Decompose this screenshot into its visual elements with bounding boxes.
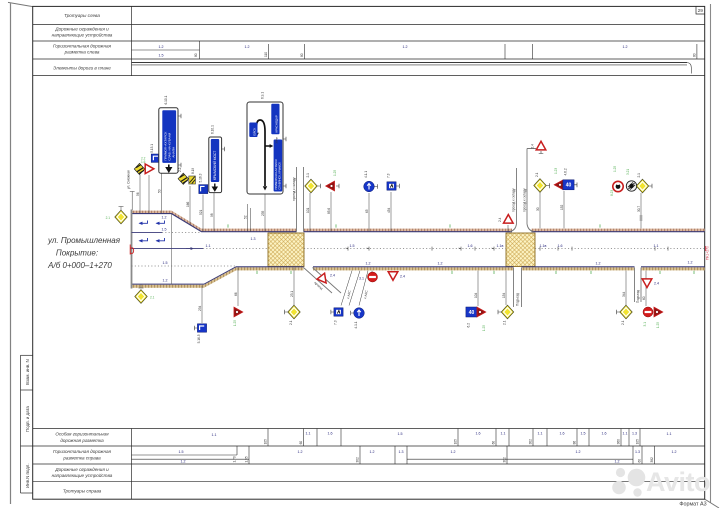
svg-text:1.1в: 1.1в (497, 244, 504, 248)
svg-text:7.3: 7.3 (334, 320, 338, 325)
svg-text:2.4: 2.4 (330, 274, 335, 278)
svg-text:50: 50 (157, 189, 161, 193)
svg-text:80: 80 (300, 53, 304, 57)
svg-text:проезд к складу: проезд к складу (522, 188, 526, 212)
svg-text:23.1: 23.1 (290, 291, 294, 297)
svg-text:382: 382 (650, 457, 654, 463)
svg-text:1.2: 1.2 (298, 450, 303, 454)
svg-text:6.9.1: 6.9.1 (261, 92, 265, 99)
svg-text:101: 101 (306, 207, 310, 213)
svg-text:дорожная разметка: дорожная разметка (60, 438, 104, 443)
svg-text:1.5: 1.5 (350, 244, 355, 248)
svg-text:2.1: 2.1 (535, 172, 539, 177)
svg-text:1.25: 1.25 (613, 166, 617, 172)
svg-text:1.2: 1.2 (159, 45, 164, 49)
svg-text:1.6: 1.6 (468, 244, 473, 248)
svg-text:65: 65 (365, 209, 369, 213)
svg-text:1.5: 1.5 (163, 261, 168, 265)
svg-text:2.1: 2.1 (289, 320, 293, 325)
svg-text:302: 302 (503, 457, 507, 463)
svg-text:1.3: 1.3 (632, 432, 637, 436)
svg-text:Покрытие:: Покрытие: (56, 249, 98, 258)
svg-text:1.2: 1.2 (615, 459, 620, 463)
svg-text:Формат А3: Формат А3 (679, 502, 706, 508)
svg-text:направляющие устройства: направляющие устройства (52, 32, 113, 38)
svg-text:7.3: 7.3 (387, 173, 391, 178)
svg-text:52: 52 (243, 215, 247, 219)
svg-text:1.25: 1.25 (656, 322, 660, 328)
svg-text:2.4: 2.4 (498, 217, 502, 222)
svg-text:1.55: 1.55 (245, 456, 249, 462)
svg-text:Подп. и дата: Подп. и дата (25, 406, 30, 432)
svg-text:1.25: 1.25 (333, 170, 337, 176)
svg-text:ул. Смежная: ул. Смежная (127, 170, 131, 189)
svg-text:разметка слева: разметка слева (64, 50, 100, 55)
svg-text:152: 152 (560, 204, 564, 210)
svg-text:8.19: 8.19 (191, 168, 195, 174)
svg-text:1.6: 1.6 (476, 432, 481, 436)
svg-text:4.1.1: 4.1.1 (364, 171, 368, 178)
svg-text:АНАПА: АНАПА (171, 146, 175, 158)
svg-text:166: 166 (186, 201, 190, 207)
svg-text:56: 56 (136, 192, 140, 196)
svg-text:1.1: 1.1 (654, 244, 659, 248)
svg-text:1.1в: 1.1в (540, 244, 547, 248)
svg-text:1.70: 1.70 (233, 456, 237, 462)
svg-text:30.7: 30.7 (637, 206, 641, 212)
svg-text:2.2: 2.2 (178, 167, 182, 172)
svg-text:66: 66 (234, 292, 238, 296)
svg-text:Подъезд: Подъезд (636, 290, 640, 303)
svg-text:154: 154 (502, 292, 506, 298)
svg-text:Горизонтальная дорожная: Горизонтальная дорожная (53, 449, 112, 454)
svg-text:1.1: 1.1 (538, 432, 543, 436)
svg-text:3.21: 3.21 (626, 169, 630, 175)
svg-text:2.1: 2.1 (306, 173, 310, 178)
svg-text:1.2: 1.2 (366, 261, 371, 265)
svg-text:302: 302 (529, 439, 533, 445)
svg-text:1.2: 1.2 (370, 450, 375, 454)
svg-text:60: 60 (492, 441, 496, 445)
svg-text:5.15.1: 5.15.1 (150, 144, 154, 153)
svg-text:1.2: 1.2 (451, 450, 456, 454)
svg-text:СЛАВЯНСК, КРЫМСК: СЛАВЯНСК, КРЫМСК (278, 162, 282, 190)
svg-text:1.5: 1.5 (179, 450, 184, 454)
svg-text:6.10.1: 6.10.1 (164, 95, 168, 104)
svg-text:6.10.1: 6.10.1 (211, 125, 215, 134)
svg-text:КРЫМСКИЙ МОСТ: КРЫМСКИЙ МОСТ (213, 151, 217, 180)
svg-text:1.6: 1.6 (141, 160, 146, 164)
svg-text:1.3: 1.3 (635, 450, 640, 454)
svg-text:Подъезд: Подъезд (516, 293, 520, 306)
svg-text:1.6: 1.6 (558, 244, 563, 248)
svg-text:ул. Промышленная: ул. Промышленная (47, 236, 121, 245)
svg-text:2.4: 2.4 (654, 282, 659, 286)
svg-text:Горизонтальная дорожная: Горизонтальная дорожная (53, 43, 112, 48)
svg-text:521: 521 (199, 209, 203, 215)
svg-text:1.2: 1.2 (162, 216, 167, 220)
svg-text:1.6: 1.6 (560, 432, 565, 436)
svg-text:300м: 300м (275, 137, 279, 143)
svg-text:3.1: 3.1 (359, 277, 364, 281)
svg-text:Особая горизонтальная: Особая горизонтальная (55, 432, 109, 437)
svg-text:234: 234 (198, 305, 202, 311)
svg-text:80: 80 (194, 53, 198, 57)
svg-text:30: 30 (536, 207, 540, 211)
svg-text:344: 344 (622, 291, 626, 297)
svg-text:Элементы дороги в плане: Элементы дороги в плане (53, 65, 111, 70)
svg-text:3.1: 3.1 (643, 322, 647, 327)
svg-text:360: 360 (617, 439, 621, 445)
svg-text:2.1: 2.1 (621, 320, 625, 325)
svg-text:1.2: 1.2 (623, 45, 628, 49)
svg-text:85.6: 85.6 (327, 208, 331, 214)
svg-text:Инв.N подл.: Инв.N подл. (25, 463, 30, 488)
svg-text:1.5: 1.5 (162, 227, 167, 231)
svg-text:1.23: 1.23 (554, 168, 558, 174)
svg-text:1.3: 1.3 (399, 450, 404, 454)
svg-text:5.16.5: 5.16.5 (197, 334, 201, 343)
svg-text:1.2: 1.2 (688, 261, 693, 265)
svg-text:2.1: 2.1 (503, 320, 507, 325)
svg-text:235: 235 (261, 210, 265, 216)
svg-text:Тротуары слева: Тротуары слева (64, 13, 100, 18)
svg-text:1.2: 1.2 (245, 45, 250, 49)
svg-text:110: 110 (264, 52, 268, 57)
svg-text:1.6: 1.6 (328, 432, 333, 436)
svg-text:направляющие устройства: направляющие устройства (52, 472, 113, 478)
svg-text:1.1: 1.1 (623, 432, 628, 436)
svg-text:60: 60 (642, 296, 646, 300)
svg-text:1.2: 1.2 (438, 261, 443, 265)
svg-text:1.1: 1.1 (667, 432, 672, 436)
svg-text:104: 104 (474, 292, 478, 298)
svg-text:60: 60 (299, 441, 303, 445)
svg-text:1.2: 1.2 (403, 45, 408, 49)
svg-text:60: 60 (638, 459, 642, 463)
svg-text:Тротуары справа: Тротуары справа (63, 489, 102, 494)
svg-text:проезд к складу: проезд к складу (512, 188, 516, 212)
svg-text:1.5: 1.5 (398, 432, 403, 436)
svg-text:1.2: 1.2 (163, 279, 168, 283)
svg-text:29: 29 (698, 8, 704, 14)
svg-text:2.4: 2.4 (400, 275, 405, 279)
svg-text:Avito: Avito (646, 467, 710, 497)
svg-text:А/б 0+000–1+270: А/б 0+000–1+270 (47, 261, 112, 270)
svg-text:1.2: 1.2 (596, 261, 601, 265)
svg-text:Дорожные ограждения и: Дорожные ограждения и (54, 27, 109, 32)
svg-text:ЕЙСК: ЕЙСК (253, 127, 257, 135)
svg-text:2.1: 2.1 (106, 216, 111, 220)
svg-text:ПК1+270: ПК1+270 (706, 246, 710, 260)
svg-text:2.4: 2.4 (531, 144, 535, 149)
svg-text:проезд к складу: проезд к складу (292, 177, 296, 201)
svg-text:6.2: 6.2 (467, 323, 471, 328)
svg-text:1.5: 1.5 (581, 432, 586, 436)
svg-text:2.1: 2.1 (150, 296, 155, 300)
svg-text:1.1: 1.1 (501, 432, 506, 436)
svg-text:разметка справа: разметка справа (62, 455, 101, 460)
svg-text:1.2: 1.2 (576, 450, 581, 454)
svg-text:1.1: 1.1 (212, 433, 217, 437)
svg-text:302: 302 (356, 457, 360, 463)
svg-text:80: 80 (693, 53, 697, 57)
svg-text:8.23: 8.23 (610, 190, 614, 196)
svg-text:5.16.3: 5.16.3 (199, 173, 203, 182)
svg-text:4.6.2: 4.6.2 (564, 168, 568, 175)
svg-text:2.1: 2.1 (637, 173, 641, 178)
svg-text:1.3: 1.3 (251, 237, 256, 241)
svg-text:1.25: 1.25 (482, 325, 486, 331)
svg-text:1.2: 1.2 (181, 460, 186, 464)
svg-text:1.2: 1.2 (672, 450, 677, 454)
svg-text:98: 98 (210, 213, 214, 217)
svg-text:4.1.1: 4.1.1 (354, 321, 358, 328)
svg-text:КРАСНОДАР: КРАСНОДАР (274, 115, 278, 133)
svg-text:454: 454 (387, 207, 391, 213)
svg-text:105: 105 (454, 439, 458, 445)
svg-text:105: 105 (264, 439, 268, 445)
svg-text:105: 105 (636, 439, 640, 445)
svg-text:1.6: 1.6 (602, 432, 607, 436)
svg-text:Дорожные ограждения и: Дорожные ограждения и (54, 467, 109, 472)
svg-text:86: 86 (573, 441, 577, 445)
svg-text:1.25: 1.25 (233, 320, 237, 326)
svg-text:1.5: 1.5 (159, 54, 164, 58)
svg-text:1.1: 1.1 (306, 432, 311, 436)
svg-text:1.1: 1.1 (206, 244, 211, 248)
svg-text:ПРИМОРСКО-АХТАРСК: ПРИМОРСКО-АХТАРСК (274, 159, 278, 190)
svg-text:Взам. инв. N: Взам. инв. N (25, 359, 30, 385)
